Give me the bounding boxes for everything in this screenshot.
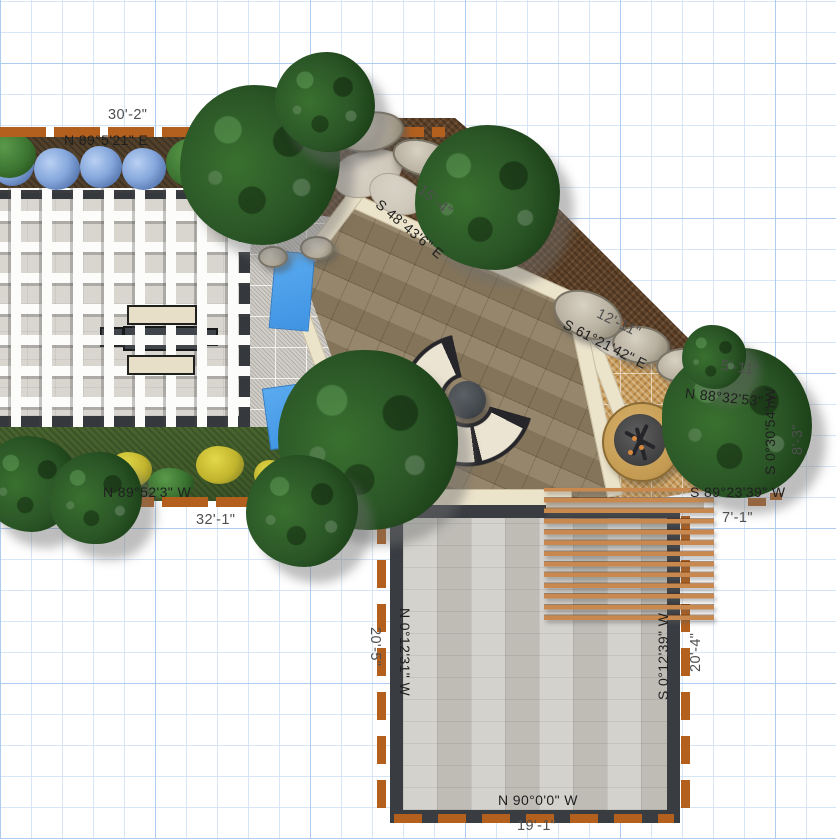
- boulder[interactable]: [258, 246, 288, 268]
- landscape-plan-canvas: 30'-2" N 89°5'21" E 15'-4" S 48°43'6" E …: [0, 0, 836, 839]
- bearing-label: N 0°12'31" W: [397, 608, 413, 696]
- outdoor-table-tile: [127, 305, 197, 325]
- dimension-label: 20'-5": [367, 627, 383, 666]
- wood-slat-pergola[interactable]: [544, 488, 714, 620]
- boulder[interactable]: [300, 236, 334, 260]
- dimension-label: 8'-3": [790, 424, 806, 455]
- ember: [628, 450, 633, 455]
- bearing-label: S 0°30'54" W: [762, 388, 778, 475]
- ember: [632, 436, 637, 441]
- dimension-label: 19'-1": [517, 818, 556, 834]
- bearing-label: N 89°5'21" E: [64, 132, 148, 148]
- bearing-label: S 89°23'39" W: [690, 484, 786, 500]
- tree-canopy[interactable]: [246, 455, 358, 567]
- dimension-label: 20'-4": [688, 633, 704, 672]
- bearing-label: S 0°12'39" W: [655, 613, 671, 700]
- bearing-label: N 89°52'3" W: [103, 484, 191, 500]
- dimension-label: 32'-1": [196, 512, 235, 528]
- dimension-label: 30'-2": [108, 107, 147, 123]
- ember: [639, 445, 644, 450]
- tree-canopy[interactable]: [682, 325, 746, 389]
- outdoor-table-tile: [127, 355, 195, 375]
- dimension-label: 7'-1": [722, 510, 753, 526]
- bearing-label: N 90°0'0" W: [498, 792, 578, 808]
